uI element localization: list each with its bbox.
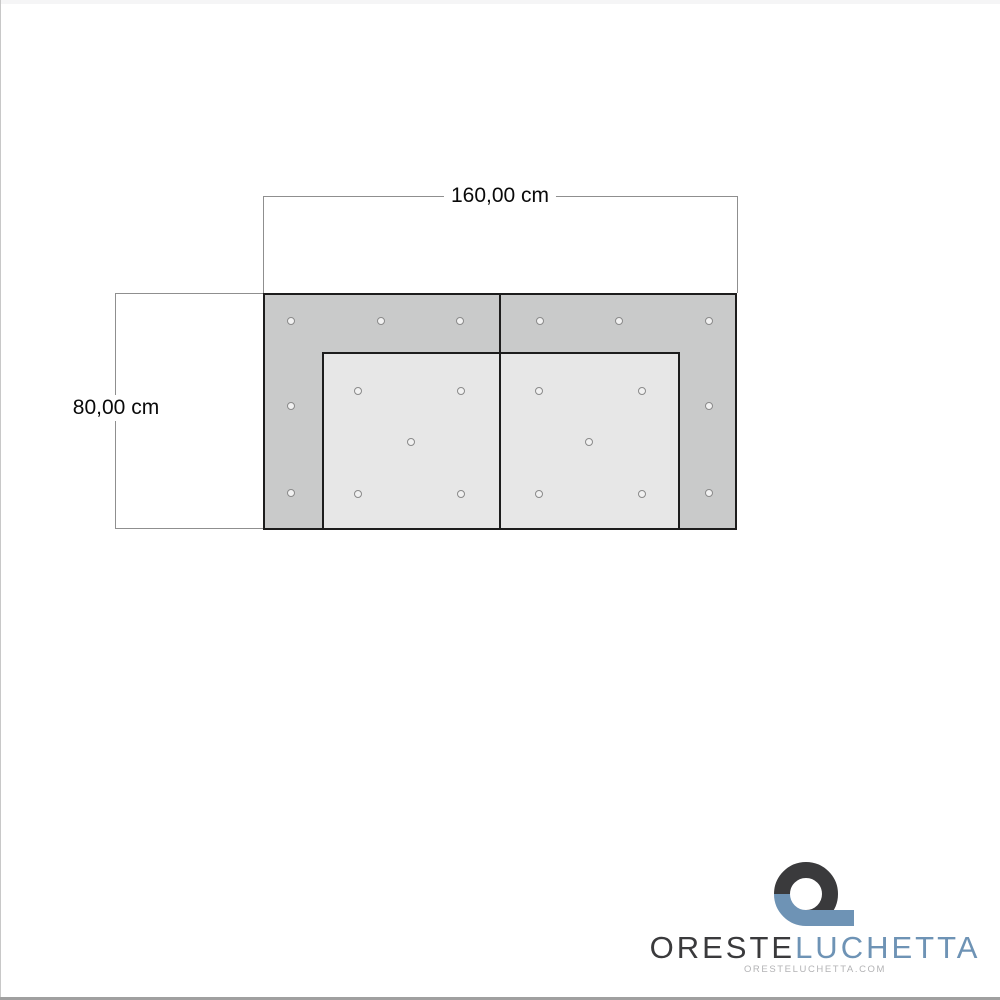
height-extension-line-bottom <box>115 528 263 529</box>
height-extension-line-top <box>115 293 263 294</box>
brand-name-primary: ORESTE <box>650 930 795 965</box>
tufting-button <box>705 489 713 497</box>
tufting-button <box>287 489 295 497</box>
tufting-button <box>457 387 465 395</box>
sofa-center-divider <box>499 293 501 530</box>
brand-wordmark: ORESTELUCHETTA <box>620 932 1000 963</box>
tufting-button <box>287 317 295 325</box>
tufting-button <box>377 317 385 325</box>
tufting-button <box>705 402 713 410</box>
tufting-button <box>287 402 295 410</box>
top-strip <box>0 0 1000 4</box>
tufting-button <box>705 317 713 325</box>
tufting-button <box>536 317 544 325</box>
height-dimension-label: 80,00 cm <box>66 395 166 421</box>
tufting-button <box>585 438 593 446</box>
logo-ring-blue-arc <box>782 894 806 918</box>
tufting-button <box>535 387 543 395</box>
width-dimension-label: 160,00 cm <box>444 183 556 209</box>
brand-logo-icon <box>768 857 860 931</box>
tufting-button <box>354 387 362 395</box>
logo-tail-bar <box>806 910 854 926</box>
page-left-border <box>0 0 1 997</box>
tufting-button <box>407 438 415 446</box>
width-extension-line-right <box>737 196 738 293</box>
width-extension-line-left <box>263 196 264 293</box>
tufting-button <box>638 387 646 395</box>
tufting-button <box>457 490 465 498</box>
tufting-button <box>638 490 646 498</box>
tufting-button <box>354 490 362 498</box>
tufting-button <box>615 317 623 325</box>
tufting-button <box>456 317 464 325</box>
tufting-button <box>535 490 543 498</box>
brand-website: ORESTELUCHETTA.COM <box>620 964 1000 975</box>
brand-name-secondary: LUCHETTA <box>795 930 980 965</box>
page-canvas: 160,00 cm 80,00 cm ORESTELUCHETTA ORESTE… <box>0 0 1000 1000</box>
